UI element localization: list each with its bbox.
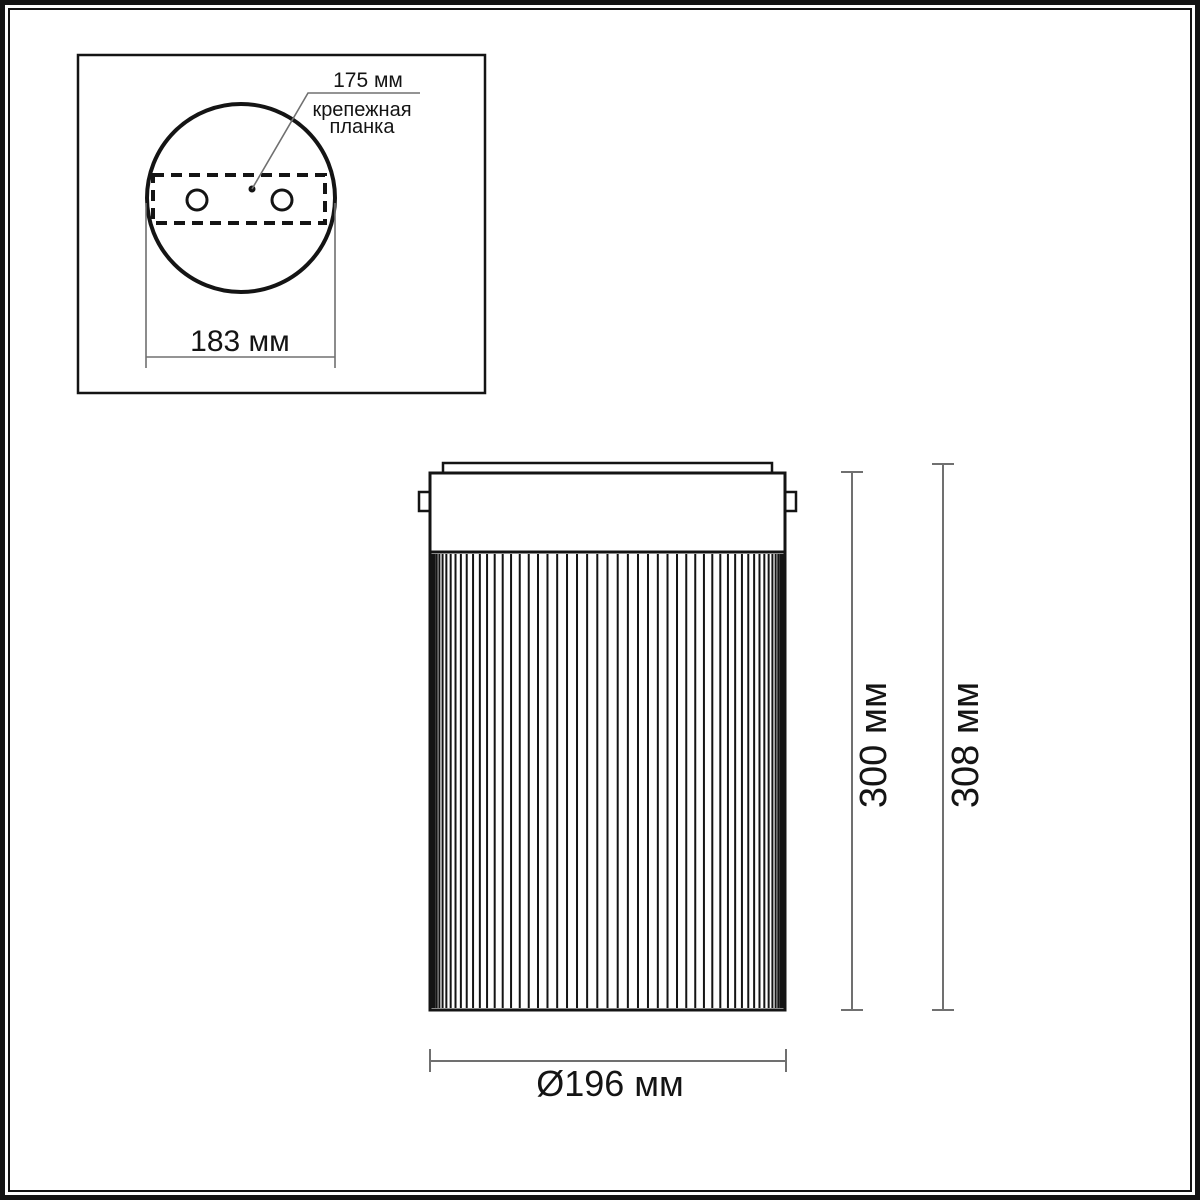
mounting-cap [430, 473, 785, 552]
side-tab-right [785, 492, 796, 511]
diameter-label: Ø196 мм [536, 1063, 684, 1104]
diagram-canvas: 175 мм крепежная планка 183 мм [0, 0, 1200, 1200]
technical-drawing-sheet: 175 мм крепежная планка 183 мм [0, 0, 1200, 1200]
screw-hole-right [272, 190, 292, 210]
overall-height-label: 308 мм [945, 682, 987, 808]
plate-width-label: 175 мм [333, 69, 403, 92]
shade-height-label: 300 мм [853, 682, 895, 808]
fluted-ribs [432, 554, 782, 1008]
top-view-inset: 175 мм крепежная планка 183 мм [78, 55, 485, 393]
side-view-fixture [419, 463, 796, 1010]
side-view-dimensions: 300 мм 308 мм Ø196 мм [430, 464, 987, 1104]
side-tab-left [419, 492, 430, 511]
mount-span-label: 183 мм [190, 325, 290, 358]
mounting-plate-dashed-outline [153, 175, 325, 223]
canopy-circle [147, 104, 335, 292]
screw-hole-left [187, 190, 207, 210]
plate-name-line2: планка [330, 116, 396, 138]
